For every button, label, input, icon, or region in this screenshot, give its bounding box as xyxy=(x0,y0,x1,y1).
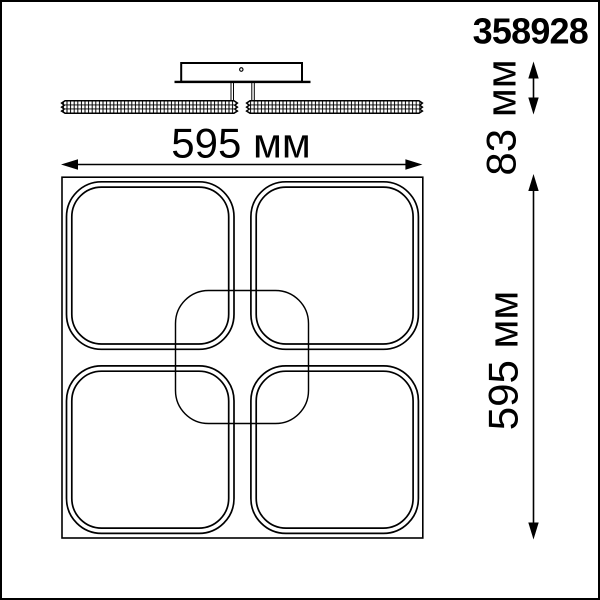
svg-text:83 мм: 83 мм xyxy=(478,59,525,175)
svg-text:595 мм: 595 мм xyxy=(480,291,527,431)
svg-text:595 мм: 595 мм xyxy=(171,120,311,167)
svg-text:358928: 358928 xyxy=(473,11,588,52)
